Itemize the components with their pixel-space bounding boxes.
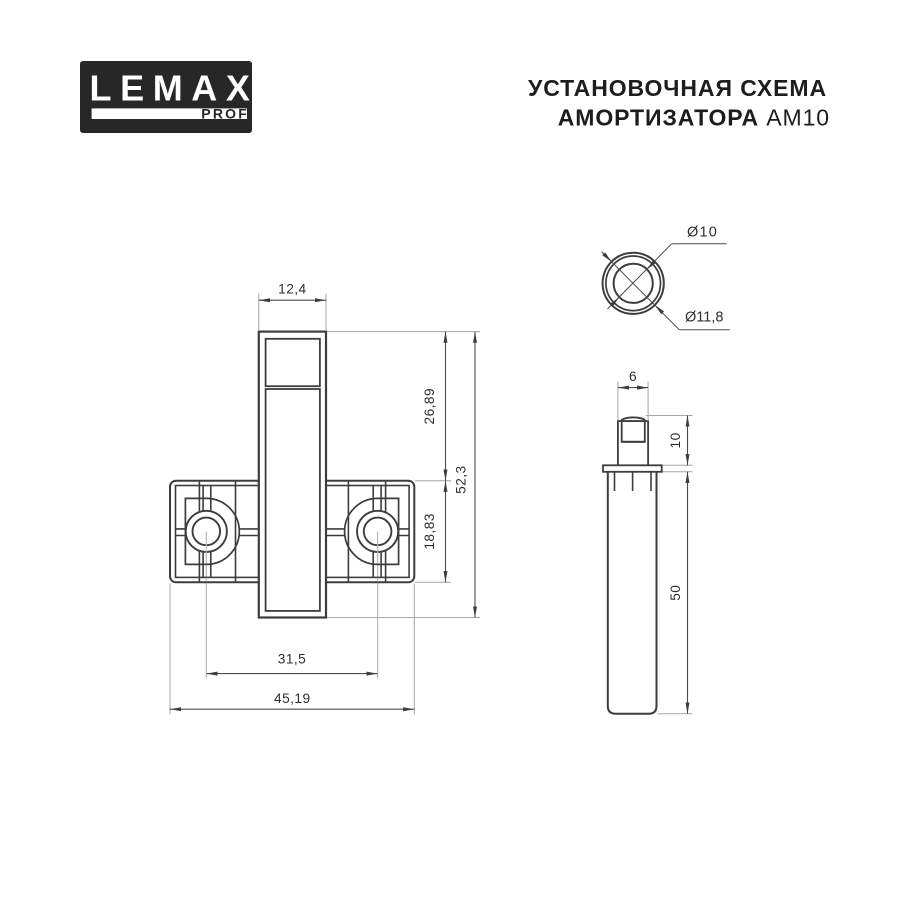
svg-text:УСТАНОВОЧНАЯ СХЕМА: УСТАНОВОЧНАЯ СХЕМА bbox=[528, 75, 827, 101]
svg-text:45,19: 45,19 bbox=[274, 691, 311, 706]
svg-text:АМОРТИЗАТОРА АМ10: АМОРТИЗАТОРА АМ10 bbox=[558, 105, 830, 131]
svg-text:PROF: PROF bbox=[201, 105, 249, 121]
svg-text:52,3: 52,3 bbox=[453, 465, 468, 493]
svg-text:26,89: 26,89 bbox=[422, 388, 437, 425]
svg-text:10: 10 bbox=[668, 432, 683, 448]
svg-text:50: 50 bbox=[668, 585, 683, 601]
svg-text:18,83: 18,83 bbox=[422, 513, 437, 550]
svg-text:Ø11,8: Ø11,8 bbox=[685, 310, 723, 326]
svg-text:6: 6 bbox=[629, 369, 637, 384]
svg-text:31,5: 31,5 bbox=[278, 652, 306, 667]
svg-text:LEMAX: LEMAX bbox=[90, 67, 259, 108]
svg-text:Ø10: Ø10 bbox=[687, 225, 718, 241]
svg-text:12,4: 12,4 bbox=[278, 281, 306, 296]
